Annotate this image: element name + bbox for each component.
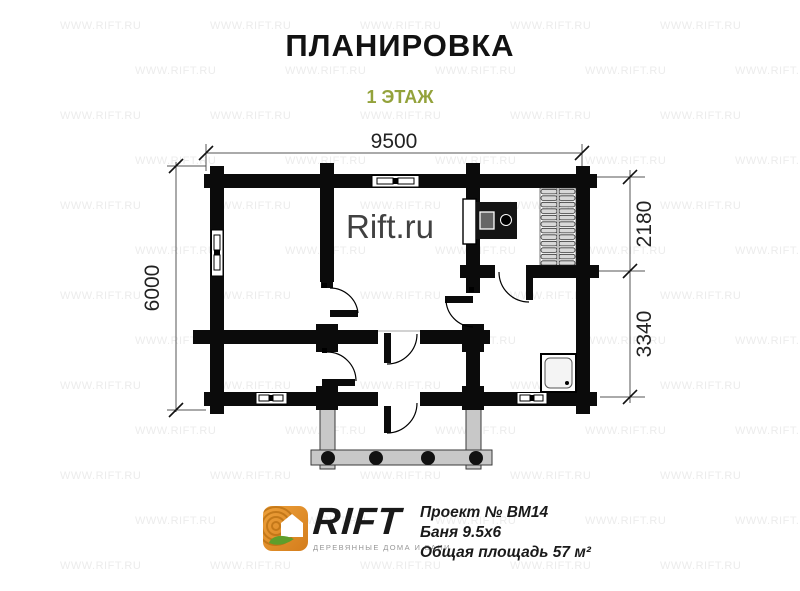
exterior-walls <box>193 163 597 414</box>
dimension-depth-label: 6000 <box>141 265 164 312</box>
project-info: Проект № ВМ14 Баня 9.5х6 Общая площадь 5… <box>420 503 591 563</box>
stove <box>463 199 517 244</box>
plan-center-watermark: Rift.ru <box>346 208 434 245</box>
dimension-sauna-label: 2180 <box>633 201 656 248</box>
project-number: Проект № ВМ14 <box>420 503 591 523</box>
porch <box>311 404 492 469</box>
dimension-width-label: 9500 <box>371 130 418 153</box>
window-top <box>372 176 419 188</box>
dimension-washroom-label: 3340 <box>633 311 656 358</box>
project-area: Общая площадь 57 м² <box>420 543 591 563</box>
window-bottom-right <box>517 393 547 405</box>
sauna-benches <box>540 188 576 265</box>
shower-tray <box>541 354 576 392</box>
dimension-depth <box>167 159 206 417</box>
doors <box>322 270 533 433</box>
project-type: Баня 9.5х6 <box>420 523 591 543</box>
rift-logo-icon <box>263 506 308 551</box>
window-bottom-left <box>256 393 287 405</box>
window-left <box>212 230 224 276</box>
